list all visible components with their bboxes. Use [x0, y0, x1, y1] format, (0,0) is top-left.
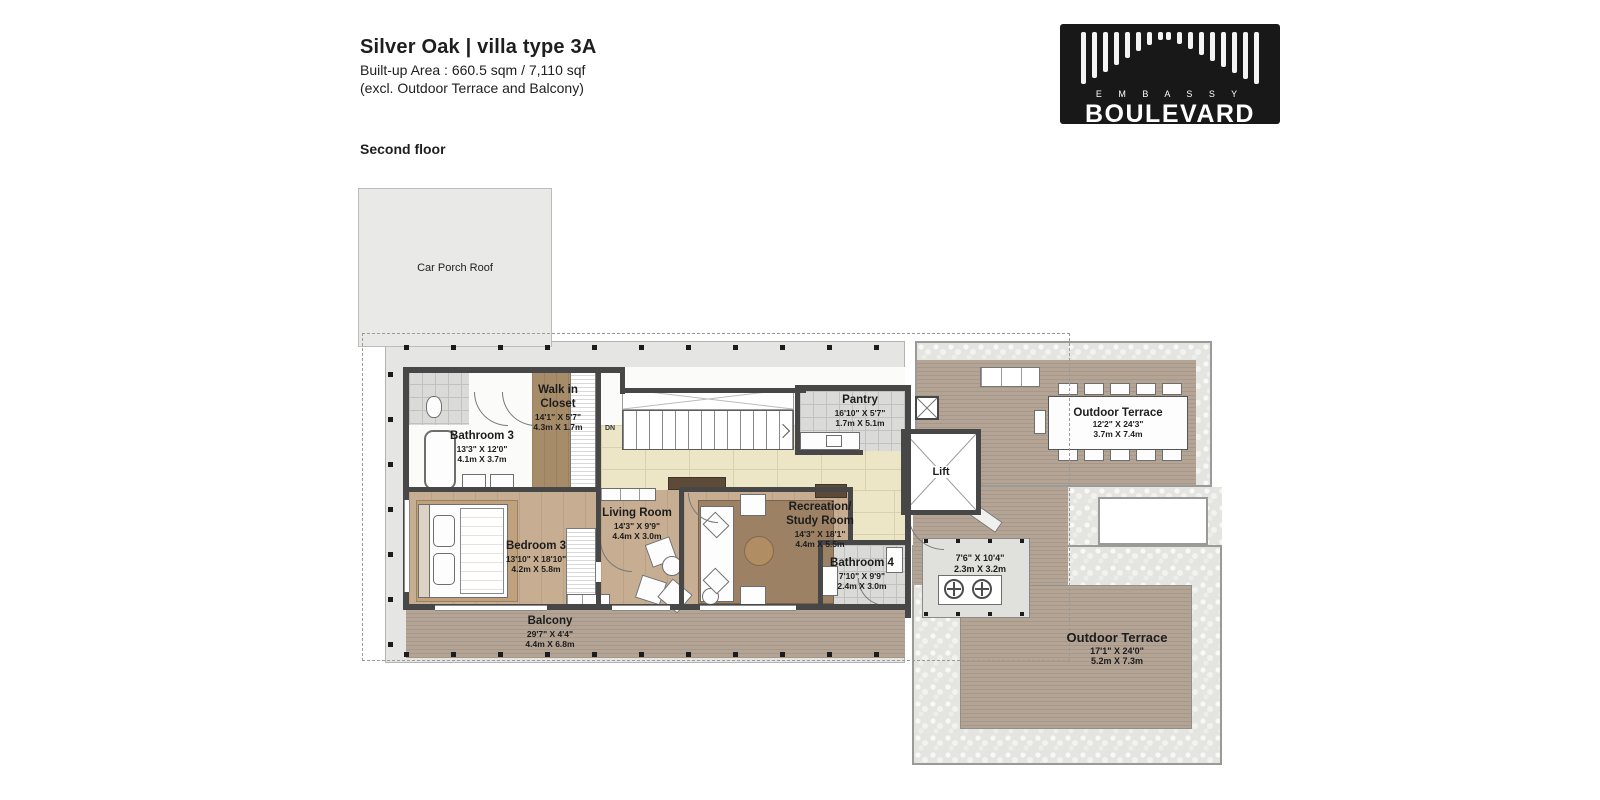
room-name: Pantry — [795, 394, 925, 408]
logo-embassy-text: E M B A S S Y — [1096, 89, 1244, 99]
terrace-notch — [1098, 497, 1208, 545]
room-dims-ft: 13'3" X 12'0" — [417, 444, 547, 454]
logo-bars-left — [1081, 32, 1163, 84]
room-dims-ft: 17'1" X 24'0" — [1027, 646, 1207, 657]
terrace-chair — [1162, 449, 1182, 461]
terrace-chair — [1110, 449, 1130, 461]
room-dims-ft: 14'3" X 18'1" — [745, 529, 895, 539]
terrace-top-dims-ft: 12'2" X 24'3" — [1093, 419, 1144, 429]
car-porch-label: Car Porch Roof — [417, 262, 493, 274]
room-name: Bathroom 4 — [797, 557, 927, 571]
terrace-top-label: Outdoor Terrace — [1073, 407, 1162, 419]
terrace-chair — [1084, 383, 1104, 395]
living-room-label: Living Room 14'3" X 9'9" 4.4m X 3.0m — [572, 507, 702, 541]
floor-label: Second floor — [360, 141, 446, 157]
room-name: Recreation/ — [745, 501, 895, 515]
roof-overhang-outline — [362, 333, 1070, 661]
car-porch-roof: Car Porch Roof — [358, 188, 552, 347]
room-dims-m: 4.4m X 3.0m — [572, 531, 702, 541]
terrace-chair — [1136, 449, 1156, 461]
bathroom4-label: Bathroom 4 7'10" X 9'9" 2.4m X 3.0m — [797, 557, 927, 591]
pantry-label: Pantry 16'10" X 5'7" 1.7m X 5.1m — [795, 394, 925, 428]
room-dims-m: 4.1m X 3.7m — [417, 454, 547, 464]
room-name: Bathroom 3 — [417, 430, 547, 444]
room-dims-ft: 29'7" X 4'4" — [475, 629, 625, 639]
floorplan-page: Silver Oak | villa type 3A Built-up Area… — [0, 0, 1600, 800]
bedroom3-label: Bedroom 3 13'10" X 18'10" 4.2m X 5.8m — [461, 540, 611, 574]
room-dims-m: 2.4m X 3.0m — [797, 581, 927, 591]
room-dims-m: 1.7m X 5.1m — [795, 418, 925, 428]
room-dims-ft: 7'6" X 10'4" — [925, 553, 1035, 564]
room-dims-m: 5.2m X 7.3m — [1027, 656, 1207, 667]
exclusion-line: (excl. Outdoor Terrace and Balcony) — [360, 80, 584, 96]
room-dims-ft: 16'10" X 5'7" — [795, 408, 925, 418]
builtup-area-line: Built-up Area : 660.5 sqm / 7,110 sqf — [360, 62, 585, 78]
terrace-chair — [1110, 383, 1130, 395]
logo-bars-icon — [1081, 32, 1259, 84]
logo-bars-right — [1166, 32, 1259, 84]
room-name: Balcony — [475, 615, 625, 629]
room-name: Closet — [508, 398, 608, 412]
room-dims-ft: 14'1" X 5'7" — [508, 412, 608, 422]
terrace-chair — [1162, 383, 1182, 395]
logo-boulevard-text: BOULEVARD — [1085, 100, 1255, 129]
room-dims-ft: 7'10" X 9'9" — [797, 571, 927, 581]
room-name: Walk in — [508, 384, 608, 398]
embassy-boulevard-logo: E M B A S S Y BOULEVARD — [1060, 24, 1280, 124]
room-dims-m: 2.3m X 3.2m — [925, 564, 1035, 575]
bathroom3-label: Bathroom 3 13'3" X 12'0" 4.1m X 3.7m — [417, 430, 547, 464]
balcony-label: Balcony 29'7" X 4'4" 4.4m X 6.8m — [475, 615, 625, 649]
room-name: Bedroom 3 — [461, 540, 611, 554]
room-dims-m: 4.4m X 5.5m — [745, 539, 895, 549]
room-dims-m: 4.4m X 6.8m — [475, 639, 625, 649]
room-dims-ft: 13'10" X 18'10" — [461, 554, 611, 564]
room-name: Outdoor Terrace — [1027, 630, 1207, 646]
room-dims-ft: 14'3" X 9'9" — [572, 521, 702, 531]
room-name: Study Room — [745, 515, 895, 529]
room-name: Living Room — [572, 507, 702, 521]
terrace-chair — [1136, 383, 1156, 395]
walkin-closet-label: Walk in Closet 14'1" X 5'7" 4.3m X 1.7m — [508, 384, 608, 432]
terrace-top-dims-m: 3.7m X 7.4m — [1093, 429, 1142, 439]
recreation-label: Recreation/ Study Room 14'3" X 18'1" 4.4… — [745, 501, 895, 549]
page-title: Silver Oak | villa type 3A — [360, 36, 596, 59]
terrace-bottom-label: Outdoor Terrace 17'1" X 24'0" 5.2m X 7.3… — [1027, 630, 1207, 667]
room-dims-m: 4.2m X 5.8m — [461, 564, 611, 574]
terrace-chair — [1084, 449, 1104, 461]
ac-ledge-label: 7'6" X 10'4" 2.3m X 3.2m — [925, 553, 1035, 575]
